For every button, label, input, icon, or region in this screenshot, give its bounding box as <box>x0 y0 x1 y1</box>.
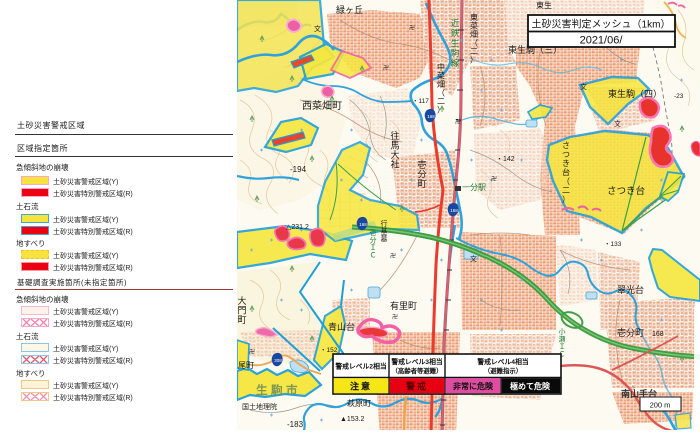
svg-text:・133: ・133 <box>604 241 622 248</box>
svg-text:（高齢者等避難）: （高齢者等避難） <box>391 366 442 375</box>
svg-text:卍: 卍 <box>409 25 415 32</box>
svg-text:近鉄生駒線: 近鉄生駒線 <box>451 18 460 68</box>
svg-text:極めて危険: 極めて危険 <box>510 381 551 391</box>
svg-text:警戒: 警戒 <box>406 381 428 392</box>
svg-text:-194: -194 <box>290 165 307 174</box>
svg-text:行基墓: 行基墓 <box>381 219 388 243</box>
svg-text:東菜畑（二）: 東菜畑（二） <box>470 12 478 65</box>
svg-text:168: 168 <box>359 222 367 227</box>
svg-text:文: 文 <box>614 119 621 128</box>
svg-text:さつき台: さつき台 <box>607 185 646 197</box>
svg-text:青山台: 青山台 <box>328 321 355 332</box>
svg-text:（避難指示）: （避難指示） <box>484 366 522 375</box>
svg-text:壱分町: 壱分町 <box>617 327 644 338</box>
svg-text:国土地理院: 国土地理院 <box>242 402 277 411</box>
svg-text:文: 文 <box>580 82 587 91</box>
svg-text:さつき台（二）: さつき台（二） <box>562 141 570 204</box>
svg-text:警戒レベル3相当: 警戒レベル3相当 <box>390 357 443 366</box>
svg-text:往馬大社: 往馬大社 <box>390 130 399 170</box>
svg-text:168: 168 <box>450 208 458 213</box>
svg-text:西菜畑町: 西菜畑町 <box>302 99 342 112</box>
svg-text:卍: 卍 <box>390 253 396 260</box>
svg-text:卍: 卍 <box>249 349 255 356</box>
svg-text:壱分町: 壱分町 <box>417 159 426 189</box>
svg-text:緑ヶ丘: 緑ヶ丘 <box>336 4 363 15</box>
svg-text:・117: ・117 <box>412 98 429 105</box>
svg-text:△231.2: △231.2 <box>286 224 309 231</box>
svg-text:非常に危険: 非常に危険 <box>453 381 494 391</box>
svg-text:▲153.2: ▲153.2 <box>340 416 365 423</box>
svg-text:警戒レベル2相当: 警戒レベル2相当 <box>334 362 387 371</box>
svg-text:一分駅: 一分駅 <box>462 183 486 192</box>
svg-text:・152: ・152 <box>320 347 338 354</box>
svg-text:東生駒（四）: 東生駒（四） <box>608 88 662 99</box>
svg-text:☆: ☆ <box>630 385 635 392</box>
svg-text:注意: 注意 <box>350 381 372 392</box>
svg-text:文: 文 <box>314 24 321 33</box>
svg-text:308: 308 <box>274 358 282 363</box>
svg-text:中菜畑（二）: 中菜畑（二） <box>437 62 445 115</box>
svg-text:卍: 卍 <box>491 176 497 183</box>
svg-text:生駒市: 生駒市 <box>256 383 301 397</box>
svg-text:東生: 東生 <box>536 0 552 10</box>
svg-text:卍: 卍 <box>383 65 389 72</box>
svg-text:-183: -183 <box>287 420 304 429</box>
svg-text:200 m: 200 m <box>650 401 671 410</box>
svg-text:168: 168 <box>652 331 664 338</box>
svg-text:尾町: 尾町 <box>238 361 254 370</box>
svg-text:有里町: 有里町 <box>390 300 417 311</box>
svg-text:168: 168 <box>427 114 435 119</box>
svg-text:壱分ＩＣ: 壱分ＩＣ <box>370 228 377 260</box>
svg-text:2021/06/: 2021/06/ <box>580 35 624 47</box>
svg-text:大門町: 大門町 <box>237 295 246 325</box>
svg-text:警戒レベル4相当: 警戒レベル4相当 <box>476 357 529 366</box>
svg-text:-23: -23 <box>674 93 684 100</box>
svg-text:・142: ・142 <box>496 156 515 163</box>
svg-text:土砂災害判定メッシュ（1km）: 土砂災害判定メッシュ（1km） <box>532 18 671 31</box>
svg-text:卍: 卍 <box>455 119 461 126</box>
svg-text:卍: 卍 <box>392 314 398 321</box>
svg-text:翠光台: 翠光台 <box>617 284 644 295</box>
svg-text:萩原町: 萩原町 <box>347 398 371 408</box>
svg-text:文: 文 <box>470 254 477 263</box>
